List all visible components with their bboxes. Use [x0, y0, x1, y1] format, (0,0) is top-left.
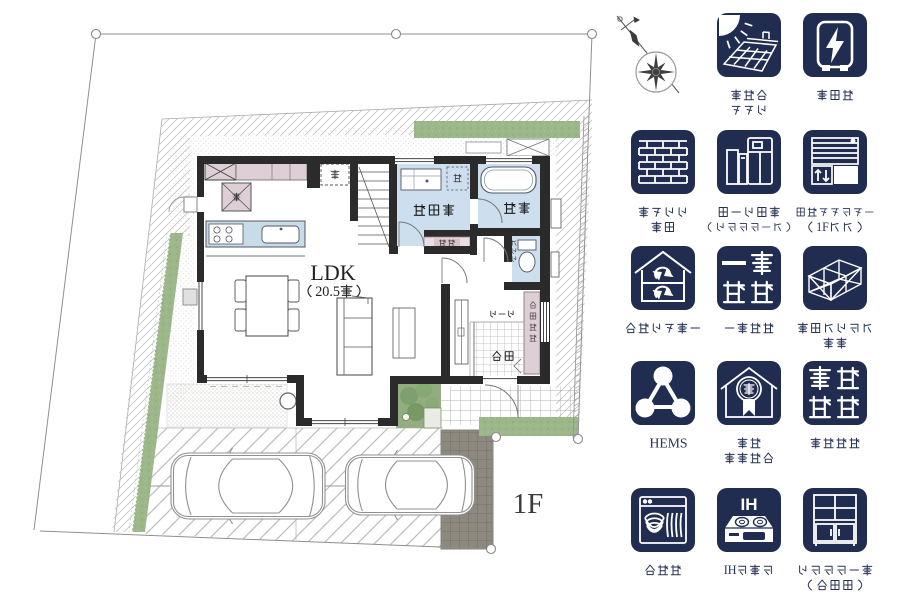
svg-text:1F: 1F — [513, 488, 544, 520]
svg-text:HEMS: HEMS — [650, 436, 688, 451]
svg-text:LDK: LDK — [310, 260, 355, 285]
svg-text:IH: IH — [741, 495, 758, 514]
svg-text:20.5: 20.5 — [315, 284, 340, 300]
svg-text:IH: IH — [724, 563, 737, 577]
svg-text:1F: 1F — [816, 220, 829, 234]
